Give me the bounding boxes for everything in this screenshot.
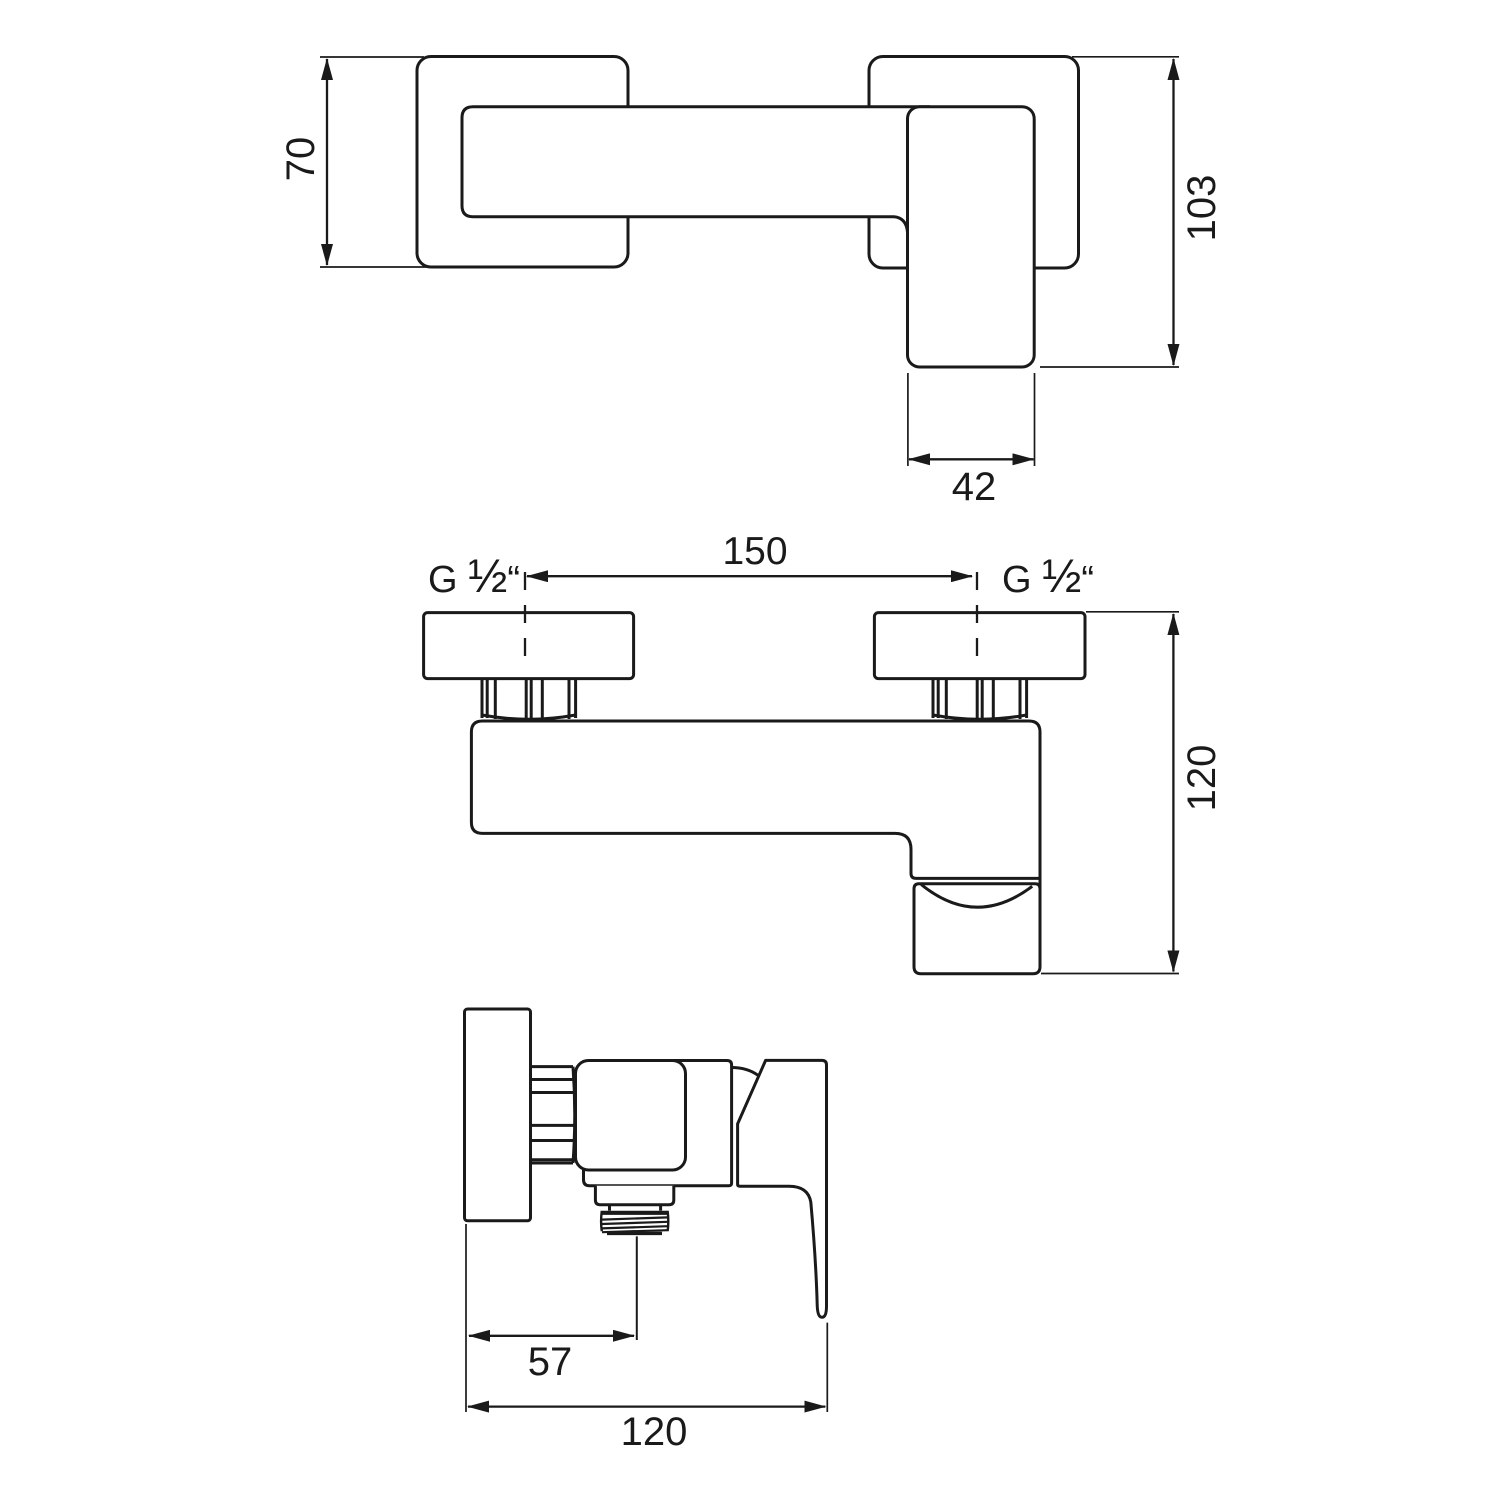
svg-text:70: 70 [279, 137, 323, 182]
svg-text:G ½“: G ½“ [1002, 549, 1094, 602]
svg-text:120: 120 [1180, 745, 1224, 812]
svg-text:42: 42 [952, 465, 997, 509]
svg-text:103: 103 [1180, 175, 1224, 242]
svg-text:150: 150 [722, 530, 787, 573]
svg-text:G ½“: G ½“ [428, 549, 520, 602]
svg-text:57: 57 [528, 1340, 573, 1384]
svg-text:120: 120 [621, 1410, 688, 1454]
